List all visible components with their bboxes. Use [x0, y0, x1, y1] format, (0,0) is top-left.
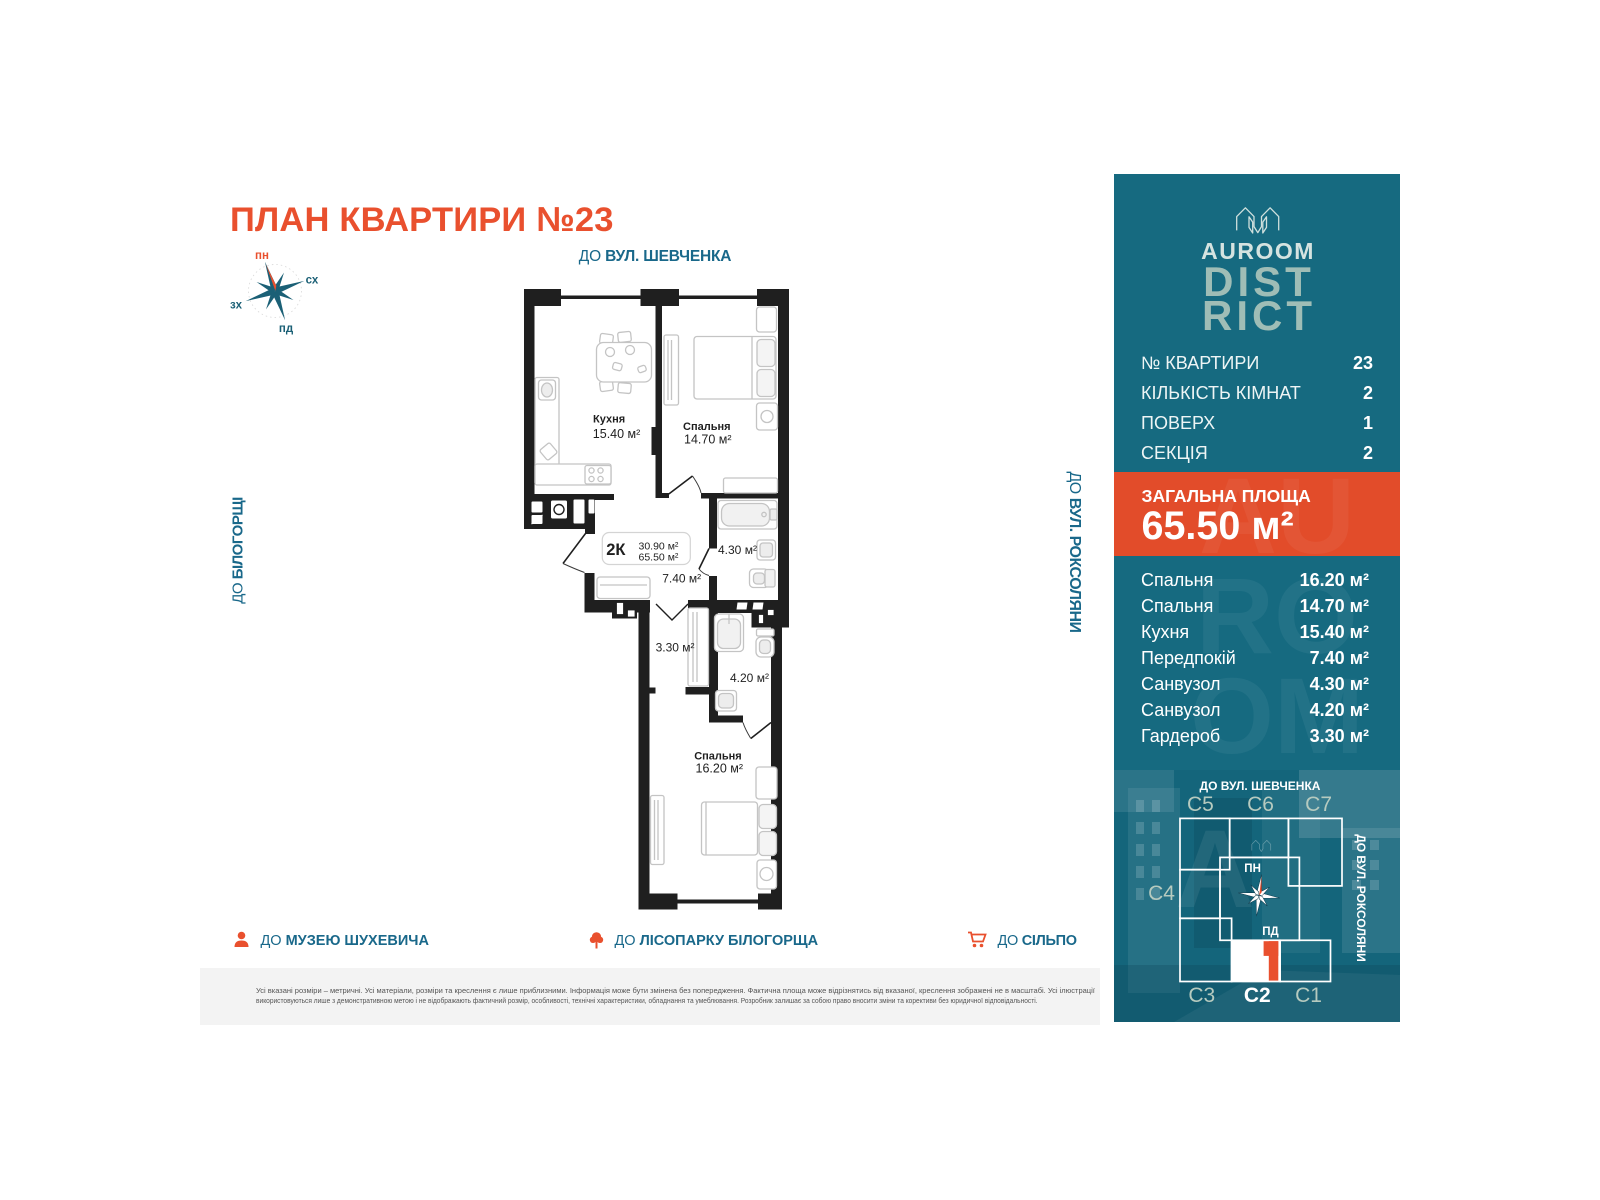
svg-text:7.40 м²: 7.40 м² [662, 572, 701, 586]
svg-text:ПД: ПД [1262, 926, 1278, 938]
svg-text:2К: 2К [606, 541, 626, 559]
svg-text:65.50 м²: 65.50 м² [639, 551, 679, 563]
svg-text:сх: сх [306, 275, 319, 287]
svg-text:С5: С5 [1187, 793, 1214, 816]
svg-text:ПН: ПН [1244, 863, 1261, 875]
svg-text:пн: пн [255, 250, 269, 262]
svg-text:С7: С7 [1305, 793, 1332, 816]
svg-text:С2: С2 [1244, 984, 1271, 1007]
svg-text:Кухня: Кухня [593, 413, 625, 425]
svg-text:С3: С3 [1188, 984, 1215, 1007]
svg-text:4.20 м²: 4.20 м² [730, 671, 769, 685]
svg-text:16.20 м²: 16.20 м² [696, 762, 744, 776]
svg-text:зх: зх [230, 300, 243, 312]
svg-text:С4: С4 [1148, 882, 1175, 905]
svg-text:15.40 м²: 15.40 м² [593, 427, 641, 441]
svg-text:4.30 м²: 4.30 м² [718, 543, 757, 557]
svg-text:пд: пд [279, 323, 294, 335]
svg-text:С1: С1 [1295, 984, 1322, 1007]
svg-text:14.70 м²: 14.70 м² [684, 433, 732, 447]
svg-text:С6: С6 [1247, 793, 1274, 816]
svg-text:3.30 м²: 3.30 м² [656, 641, 695, 655]
svg-text:Спальня: Спальня [683, 421, 731, 433]
